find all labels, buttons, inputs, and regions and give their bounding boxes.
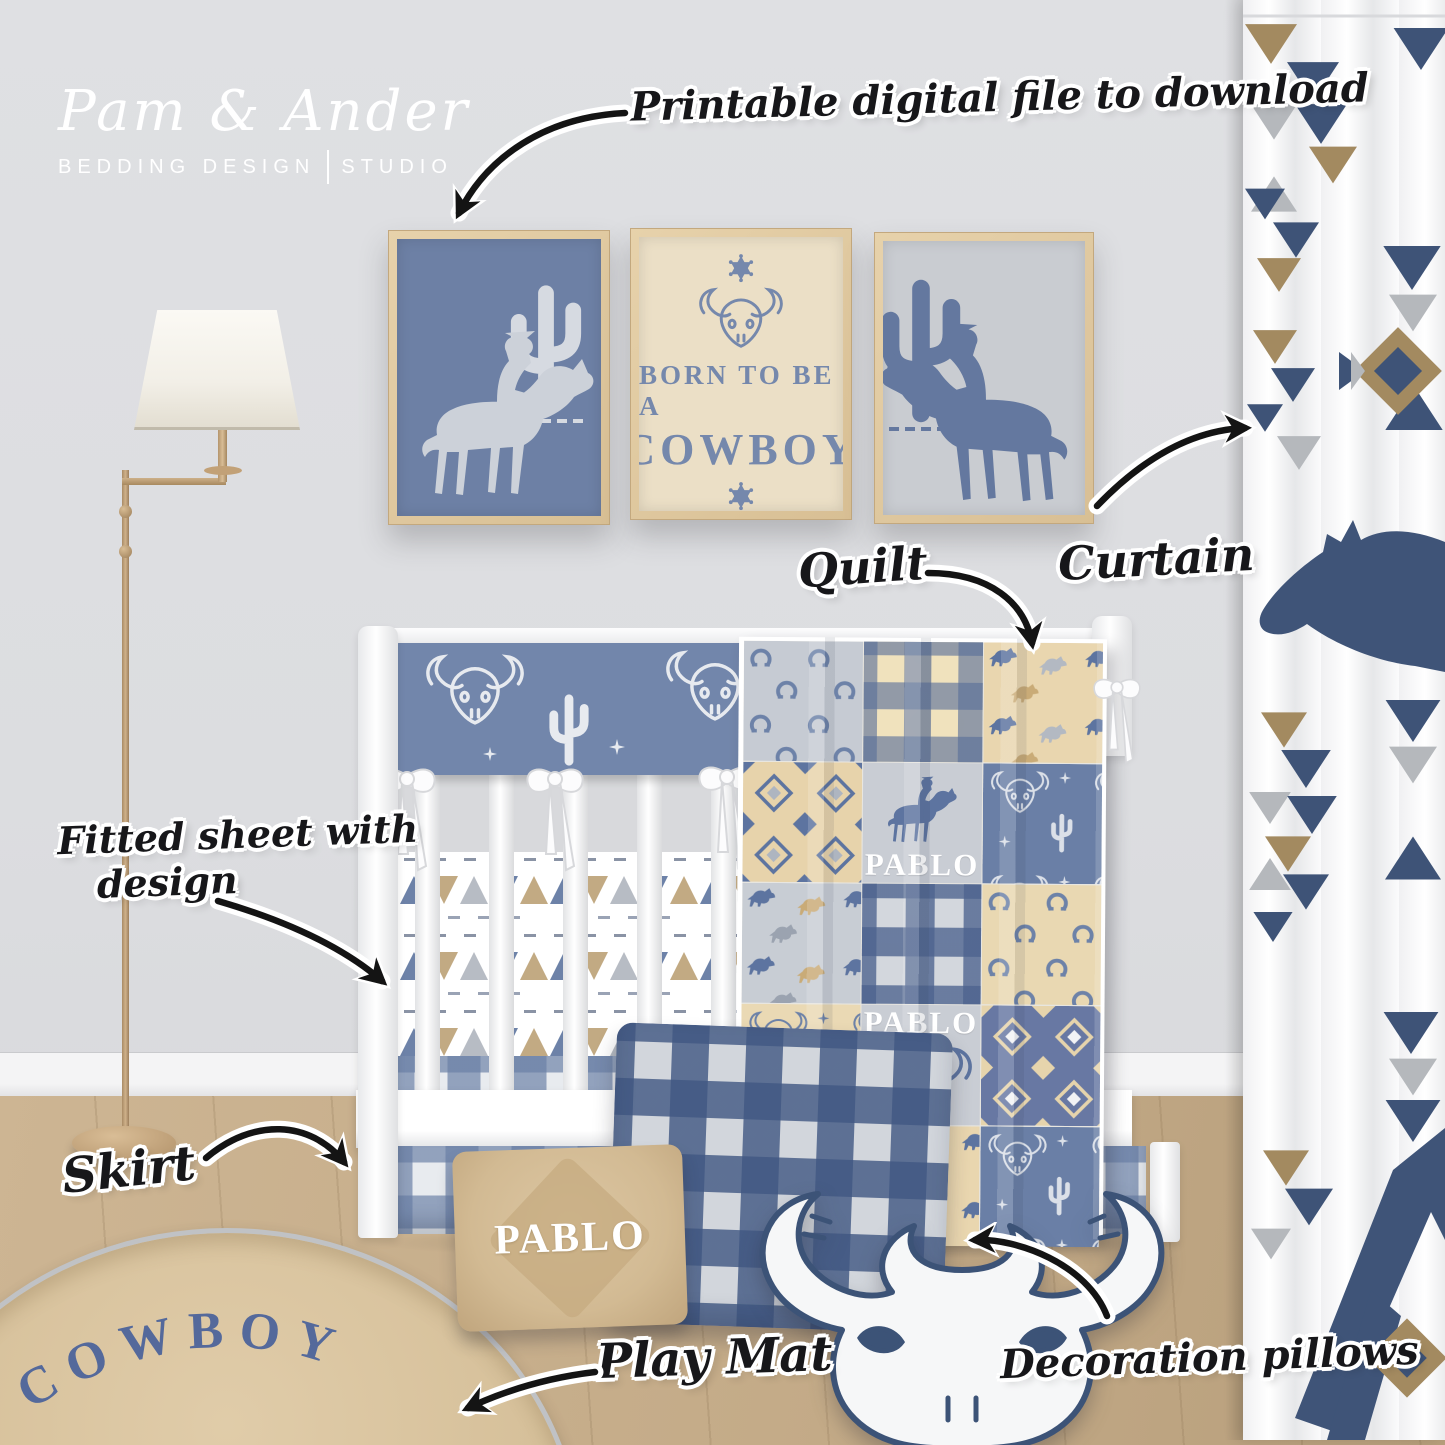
lamp-knob <box>119 505 132 518</box>
quilt-patch-aztec <box>742 762 862 883</box>
print-text-line2: COWBOY <box>639 424 843 475</box>
wall-art-right-print <box>883 241 1085 515</box>
wall-art-left-frame <box>388 230 610 525</box>
curtain-shadow <box>1225 0 1245 1440</box>
brand-tagline-divider <box>327 150 329 184</box>
quilt-patch-aztec <box>981 1005 1101 1126</box>
lamp-knob <box>119 545 132 558</box>
cowboy-rider-icon <box>863 763 983 848</box>
wall-art-left-print <box>397 239 601 516</box>
print-text-line1: BORN TO BE A <box>639 360 843 422</box>
annotation-quilt: Quilt <box>796 536 929 599</box>
curtain <box>1243 0 1445 1440</box>
arrow-curtain <box>1085 408 1265 518</box>
nursery-mockup-scene: Pam & Ander BEDDING DESIGN STUDIO BORN T… <box>0 0 1445 1445</box>
play-mat-arc-text: COWBOY <box>7 1301 354 1420</box>
quilt-patch-skulls <box>982 763 1102 884</box>
curtain-horse-silhouette <box>1260 520 1445 672</box>
lamp-arm <box>122 478 226 485</box>
bull-skull-icon <box>666 283 816 351</box>
brand-logo: Pam & Ander BEDDING DESIGN STUDIO <box>58 84 470 184</box>
brand-name: Pam & Ander <box>58 84 470 140</box>
quilt-name-text: PABLO <box>865 847 980 884</box>
quilt-patch-horses <box>742 883 862 1004</box>
rail-cover-tie <box>1088 668 1146 778</box>
name-pillow: PABLO <box>452 1144 688 1332</box>
annotation-curtain: Curtain <box>1057 527 1256 591</box>
sheriff-star-icon <box>718 481 764 511</box>
arrow-quilt <box>920 555 1050 665</box>
quilt-patch-plaid <box>862 884 982 1005</box>
curtain-horse-legs <box>1295 1128 1445 1440</box>
svg-text:COWBOY: COWBOY <box>7 1301 354 1420</box>
arrow-fitted-sheet <box>210 885 405 1005</box>
wall-art-right-frame <box>874 232 1094 524</box>
rail-cover-tie <box>520 762 590 882</box>
arrow-play-mat <box>450 1358 605 1430</box>
quilt-patch-horseshoes <box>743 641 863 762</box>
crib-slat <box>489 764 514 1094</box>
lamp-shade <box>134 310 300 430</box>
brand-tagline-left: BEDDING DESIGN <box>58 156 315 179</box>
arrow-printable <box>425 95 635 235</box>
annotation-play-mat: Play Mat <box>595 1326 833 1390</box>
arrow-decoration-pillows <box>955 1222 1120 1327</box>
quilt-patch-horseshoes <box>982 884 1102 1005</box>
wall-art-center-print: BORN TO BE A COWBOY <box>639 237 843 511</box>
sheriff-star-icon <box>718 253 764 283</box>
arrow-skirt <box>198 1112 368 1197</box>
lamp-fitting <box>204 466 242 475</box>
quilt-name-patch: PABLO <box>862 763 982 884</box>
wall-art-center-frame: BORN TO BE A COWBOY <box>630 228 852 520</box>
name-pillow-text: PABLO <box>493 1211 646 1264</box>
lamp-pole <box>122 470 129 1142</box>
